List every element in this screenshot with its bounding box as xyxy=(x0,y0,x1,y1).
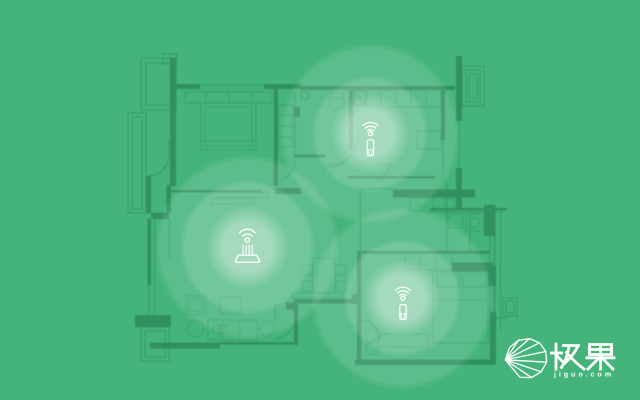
svg-text:jiguo.com: jiguo.com xyxy=(553,369,614,378)
